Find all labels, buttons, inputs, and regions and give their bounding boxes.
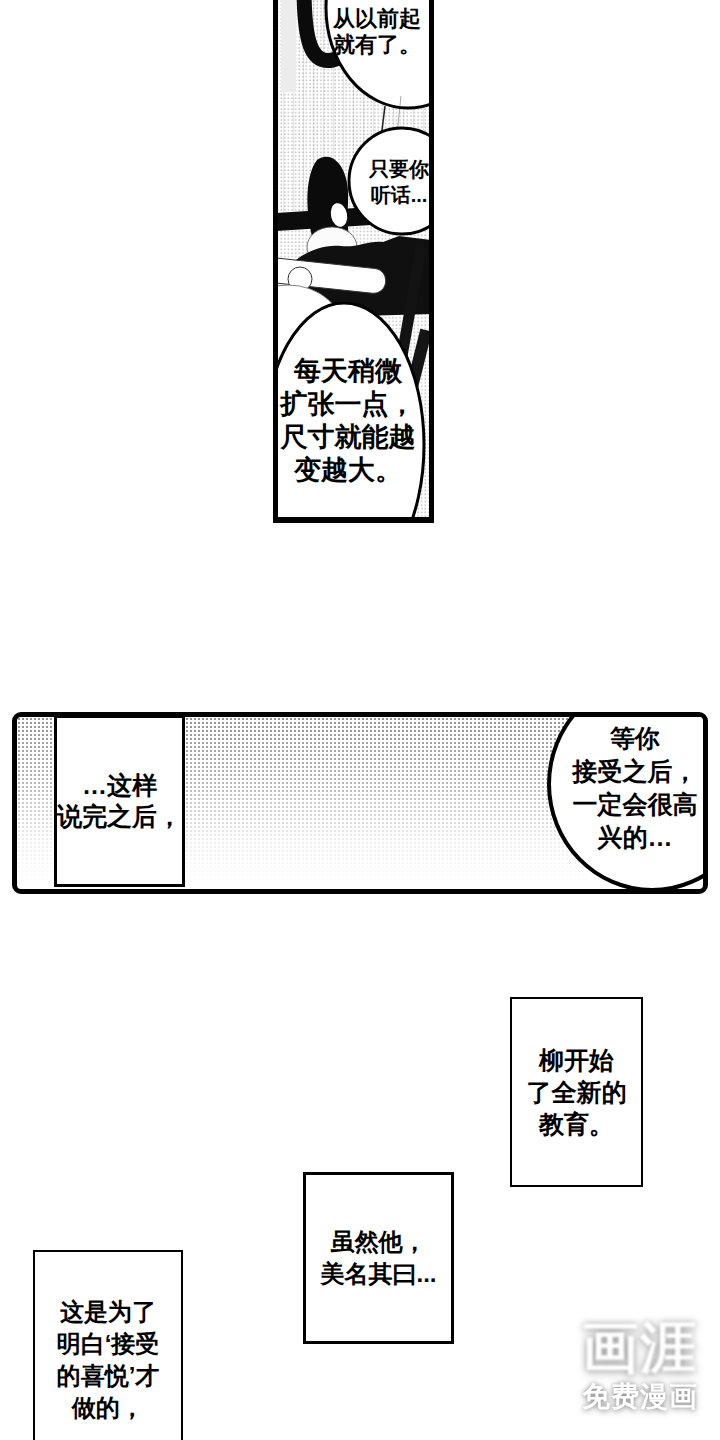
- bubble-line: 扩张一点，: [273, 388, 423, 421]
- bubble-line: 接受之后，: [560, 755, 708, 788]
- speech-bubble-text-2: 只要你 听话...: [347, 156, 434, 208]
- narration-line: …这样: [57, 770, 182, 801]
- narration-line: 说完之后，: [57, 801, 182, 832]
- huaya-logo: 画涯: [566, 1316, 714, 1380]
- bubble-line: 从以前起: [325, 6, 429, 32]
- bubble-line: 每天稍微: [273, 355, 423, 388]
- bubble-line: 兴的…: [560, 821, 708, 854]
- manga-panel-strip: 等你 接受之后， 一定会很高 兴的… …这样 说完之后，: [12, 712, 708, 894]
- narration-box-suiran: 虽然他， 美名其曰...: [303, 1172, 454, 1344]
- manga-panel-top: 从以前起 就有了。 只要你 听话... 每天稍微 扩张一点， 尺寸就能越 变越大…: [273, 0, 434, 523]
- narration-line: 做的，: [35, 1392, 181, 1424]
- narration-line: 的喜悦’才: [35, 1360, 181, 1392]
- bubble-line: 一定会很高: [560, 788, 708, 821]
- narration-line: 虽然他，: [306, 1226, 451, 1258]
- narration-box-strip: …这样 说完之后，: [54, 715, 185, 887]
- speech-bubble-text-1: 从以前起 就有了。: [325, 6, 429, 58]
- speech-bubble-text-4: 等你 接受之后， 一定会很高 兴的…: [560, 722, 708, 854]
- bubble-line: 等你: [560, 722, 708, 755]
- narration-line: 柳开始: [512, 1044, 641, 1076]
- bubble-line: 只要你: [347, 156, 434, 182]
- bubble-line: 尺寸就能越: [273, 421, 423, 454]
- watermark: 画涯 免费漫画: [566, 1316, 714, 1414]
- narration-line: 这是为了: [35, 1296, 181, 1328]
- narration-line: 了全新的: [512, 1076, 641, 1108]
- narration-line: 美名其曰...: [306, 1258, 451, 1290]
- bubble-line: 听话...: [347, 182, 434, 208]
- watermark-subtitle: 免费漫画: [566, 1380, 714, 1414]
- bubble-line: 变越大。: [273, 454, 423, 487]
- narration-box-liu: 柳开始 了全新的 教育。: [510, 997, 643, 1187]
- bubble-line: 就有了。: [325, 32, 429, 58]
- manga-page: 从以前起 就有了。 只要你 听话... 每天稍微 扩张一点， 尺寸就能越 变越大…: [0, 0, 720, 1440]
- narration-box-zheshi: 这是为了 明白‘接受 的喜悦’才 做的，: [33, 1250, 183, 1440]
- narration-line: 明白‘接受: [35, 1328, 181, 1360]
- narration-line: 教育。: [512, 1108, 641, 1140]
- speech-bubble-text-3: 每天稍微 扩张一点， 尺寸就能越 变越大。: [273, 355, 423, 487]
